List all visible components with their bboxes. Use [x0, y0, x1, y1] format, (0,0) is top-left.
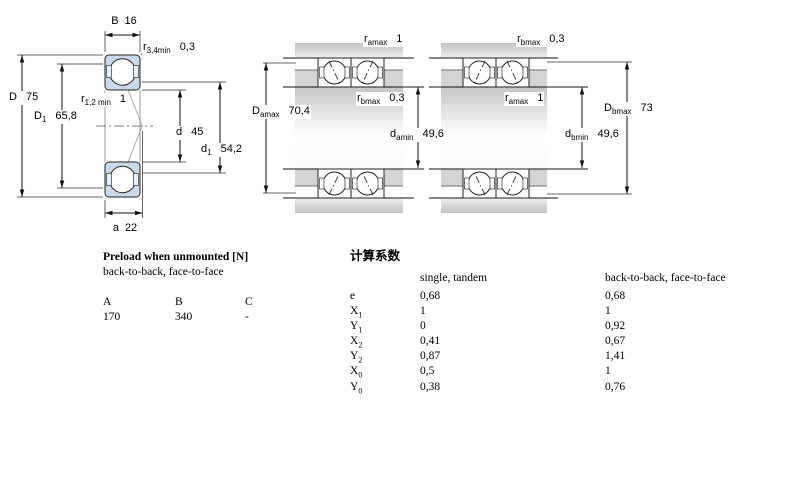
factor-value-single: 0,68: [420, 290, 440, 303]
factor-value-single: 0: [420, 320, 426, 333]
preload-col-C: C: [245, 296, 253, 309]
ball: [501, 172, 524, 195]
cage-pocket: [134, 66, 139, 78]
housing-bottom: [441, 198, 547, 213]
bearing-ring-section-bottom: [105, 162, 140, 197]
ball: [468, 61, 491, 84]
dim-label-rbmax-a: rbmax0,3: [356, 92, 406, 106]
extension-lines: [263, 63, 296, 193]
dim-label-B: B16: [104, 15, 144, 29]
factor-row-label: Y0: [350, 381, 362, 395]
dim-label-d: d45: [175, 126, 204, 140]
bearing-pair-bottom: [318, 169, 384, 198]
housing-bottom: [295, 198, 403, 213]
factors-col2-header: back-to-back, face-to-face: [605, 272, 726, 285]
factor-value-paired: 0,68: [605, 290, 625, 303]
preload-subtitle: back-to-back, face-to-face: [103, 266, 224, 279]
ball: [109, 59, 135, 85]
factors-col1-header: single, tandem: [420, 272, 487, 285]
dim-label-ramax-a: ramax1: [363, 33, 403, 47]
factor-value-single: 1: [420, 305, 426, 318]
factor-row-label: e: [350, 290, 355, 304]
dim-label-r34: r3,4min0,3: [142, 41, 196, 55]
dim-label-D: D75: [8, 91, 39, 105]
dim-label-d1: d154,2: [200, 143, 243, 157]
dim-label-ramax-b: ramax1: [504, 92, 544, 106]
ball: [356, 61, 379, 84]
bearing-pair-top: [463, 58, 529, 87]
factor-value-paired: 1,41: [605, 350, 625, 363]
ball: [109, 166, 135, 192]
factor-row-label: Y2: [350, 350, 362, 364]
bearing-ring-section-top: [105, 55, 140, 90]
factor-row-label: X2: [350, 335, 362, 349]
ball: [501, 61, 524, 84]
dim-label-r12: r1,2 min1: [80, 93, 127, 107]
cage-pocket: [134, 174, 139, 186]
factor-value-paired: 1: [605, 365, 611, 378]
factor-value-paired: 0,76: [605, 381, 625, 394]
preload-value-A: 170: [103, 311, 120, 324]
bearing-pair-top: [318, 58, 384, 87]
factor-value-single: 0,38: [420, 381, 440, 394]
ball: [323, 172, 346, 195]
ball: [323, 61, 346, 84]
ball: [356, 172, 379, 195]
preload-title: Preload when unmounted [N]: [103, 251, 248, 264]
factors-title: 计算系数: [350, 249, 400, 263]
dim-label-a: a22: [104, 222, 146, 236]
ball: [468, 172, 491, 195]
factor-row-label: X0: [350, 365, 362, 379]
dim-label-D1: D165,8: [33, 110, 78, 124]
dim-label-rbmax-b: rbmax0,3: [516, 33, 566, 47]
dim-label-Damax: Damax70,4: [251, 105, 311, 119]
factor-value-single: 0,41: [420, 335, 440, 348]
preload-col-B: B: [175, 296, 183, 309]
cage-pocket: [107, 174, 112, 186]
factor-value-single: 0,5: [420, 365, 434, 378]
preload-value-C: -: [245, 311, 249, 324]
factor-value-paired: 1: [605, 305, 611, 318]
dim-label-dbmin: dbmin49,6: [564, 128, 620, 142]
factor-value-paired: 0,92: [605, 320, 625, 333]
bearing-pair-bottom: [463, 169, 529, 198]
preload-col-A: A: [103, 296, 111, 309]
cage-pocket: [107, 66, 112, 78]
bearing-datasheet-page: B16 r3,4min0,3 D75 D165,8 r1,2 min1 d45 …: [0, 0, 800, 500]
factor-row-label: X1: [350, 305, 362, 319]
dim-label-Dbmax: Dbmax73: [603, 102, 654, 116]
factor-value-single: 0,87: [420, 350, 440, 363]
factor-row-label: Y1: [350, 320, 362, 334]
preload-value-B: 340: [175, 311, 192, 324]
dim-label-damin: damin49,6: [389, 128, 445, 142]
single-bearing-cross-section: [17, 31, 226, 218]
factor-value-paired: 0,67: [605, 335, 625, 348]
